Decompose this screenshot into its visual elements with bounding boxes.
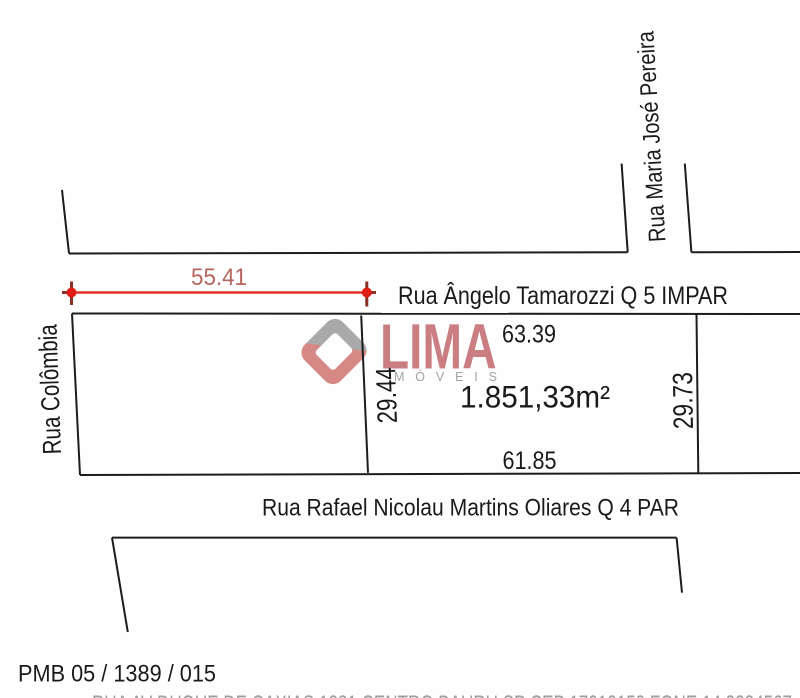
svg-text:Rua Maria José Pereira: Rua Maria José Pereira: [632, 30, 671, 243]
svg-text:63.39: 63.39: [502, 320, 556, 348]
svg-text:29.44: 29.44: [370, 367, 403, 424]
svg-text:Rua Rafael Nicolau Martins Oli: Rua Rafael Nicolau Martins Oliares Q 4 P…: [262, 495, 679, 522]
svg-text:PMB 05 / 1389 / 015: PMB 05 / 1389 / 015: [18, 661, 216, 688]
svg-text:Rua Ângelo Tamarozzi Q 5 IMPAR: Rua Ângelo Tamarozzi Q 5 IMPAR: [398, 281, 728, 310]
svg-text:Rua Colômbia: Rua Colômbia: [32, 323, 67, 454]
svg-text:29.73: 29.73: [667, 372, 699, 430]
svg-text:55.41: 55.41: [191, 264, 247, 291]
svg-text:1.851,33m²: 1.851,33m²: [460, 379, 610, 415]
svg-text:RUA AV DUQUE DE CAXIAS 1231 CE: RUA AV DUQUE DE CAXIAS 1231 CENTRO BAURU…: [92, 691, 792, 698]
svg-text:61.85: 61.85: [503, 447, 557, 475]
